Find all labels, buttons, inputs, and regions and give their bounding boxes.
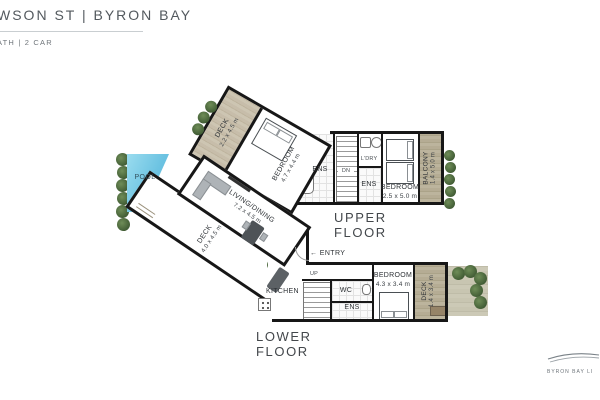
stairs-down-label: DN (338, 168, 354, 175)
plant-icon (444, 198, 455, 209)
room-dims: 4.3 x 3.4 m (372, 281, 414, 289)
wall (296, 202, 444, 205)
wall (330, 301, 372, 303)
wall (357, 166, 383, 168)
balcony-label: BALCONY 1.4 x 5.0 m (421, 136, 441, 201)
upper-bedroom-2-label: BEDROOM 2.5 x 5.0 m (380, 184, 420, 201)
wall (357, 134, 359, 202)
lower-floor-label: LOWER FLOOR (256, 329, 366, 359)
plant-icon (452, 267, 465, 280)
plant-icon (444, 174, 455, 185)
wall (330, 279, 332, 319)
wall (302, 279, 372, 281)
upper-ensuite-2-label: ENS (357, 181, 381, 190)
room-dims: 2.5 x 5.0 m (380, 193, 420, 201)
room-name: BEDROOM (380, 184, 420, 193)
room-name: DECK (421, 281, 429, 300)
sofa-icon (192, 178, 211, 200)
upper-ensuite-1-label: ENS (306, 166, 334, 175)
plant-icon (444, 150, 455, 161)
stove-icon (258, 298, 271, 311)
room-dims: 1.4 x 3.4 m (429, 275, 437, 307)
lower-bedroom-label: BEDROOM 4.3 x 3.4 m (372, 272, 414, 289)
entry-arrow-icon: ← (310, 250, 317, 257)
room-name: BALCONY (423, 151, 431, 184)
washer-icon (360, 137, 371, 148)
plant-icon (445, 162, 456, 173)
entry-text: ENTRY (320, 250, 346, 257)
kitchen-label: KITCHEN (266, 288, 306, 297)
laundry-label: L'DRY (357, 156, 381, 163)
brand-logo-text: BYRON BAY LI (547, 369, 600, 375)
pillow-icon (394, 311, 407, 318)
plant-icon (117, 218, 130, 231)
wc-label: WC (332, 287, 360, 296)
wall (445, 262, 448, 322)
toilet-icon (362, 284, 371, 295)
wall (330, 131, 444, 134)
stairs-up-label: UP (306, 271, 322, 278)
pillow-icon (407, 141, 413, 159)
upper-floor-label: UPPER FLOOR (334, 210, 444, 240)
pool-label: POOL (126, 174, 164, 183)
property-specs: ATH | 2 CAR (0, 38, 53, 47)
stairs-up (303, 282, 331, 321)
room-name: BEDROOM (372, 272, 414, 281)
pillow-icon (381, 311, 394, 318)
wave-lines-icon (546, 350, 600, 364)
floorplan-page: WSON ST | BYRON BAY ATH | 2 CAR ENS DN L… (0, 0, 600, 400)
plant-icon (445, 186, 456, 197)
wall (441, 131, 444, 205)
entry-label: ← ENTRY (310, 250, 345, 257)
lower-ensuite-label: ENS (338, 304, 366, 313)
title-divider (0, 31, 143, 32)
lower-rear-deck-label: DECK 1.4 x 3.4 m (419, 261, 439, 321)
page-title: WSON ST | BYRON BAY (0, 7, 192, 23)
pillow-icon (407, 164, 413, 182)
room-dims: 1.4 x 5.0 m (431, 152, 439, 184)
plant-icon (474, 296, 487, 309)
